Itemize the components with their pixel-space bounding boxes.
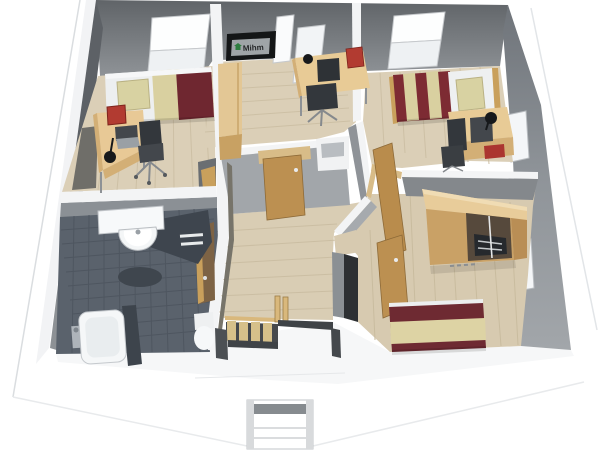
svg-text:Mihm: Mihm <box>243 43 264 53</box>
